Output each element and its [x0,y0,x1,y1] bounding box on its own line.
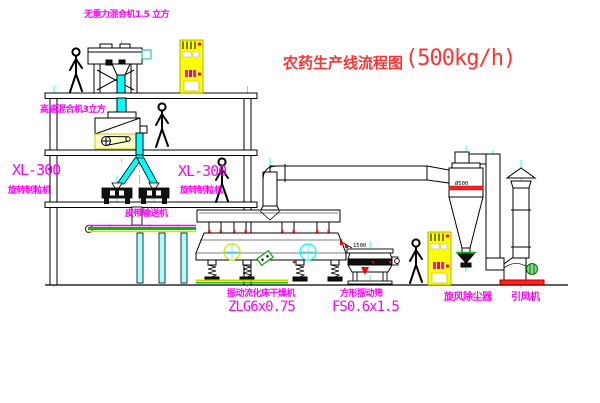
diagram-title: 农药生产线流程图 (500kg/h) [283,46,515,73]
title-text: 农药生产线流程图 [283,52,403,73]
label-sieve-name: 方形振动筛 [340,290,383,299]
control-cabinet-top [180,40,203,93]
process-flow-diagram: 1500 Ø500 [0,0,600,403]
induced-draft-fan [486,154,544,285]
fluid-bed-dryer [196,210,352,283]
control-cabinet-bottom [428,232,451,285]
label-belt-conveyor: 皮带输送机 [125,210,168,219]
person-figure [410,239,422,283]
gravity-free-mixer [88,44,151,93]
label-granulator-left-name: 旋转制粒机 [8,187,51,196]
title-capacity: (500kg/h) [405,46,515,71]
person-figure [70,48,82,92]
label-cyclone: 旋风除尘器 [444,293,492,303]
y-duct [117,155,158,184]
label-induced-fan: 引风机 [511,293,540,303]
label-gravity-mixer: 无重力混合机1.5 立方 [84,11,169,20]
label-granulator-left-model: XL-300 [12,163,60,178]
vibrating-sieve: 1500 [347,243,399,284]
label-granulator-right-name: 旋转制粒机 [180,187,223,196]
label-high-speed-mixer: 高速混合机3立方 [40,106,105,115]
label-granulator-right-model: XL-300 [178,164,226,179]
person-figure [156,103,168,147]
label-sieve-model: FS0.6x1.5 [332,300,399,314]
sieve-dimension-label: 1500 [353,243,366,249]
label-dryer-name: 振动流化床干燥机 [227,290,295,299]
label-dryer-model: ZLG6x0.75 [228,300,295,314]
